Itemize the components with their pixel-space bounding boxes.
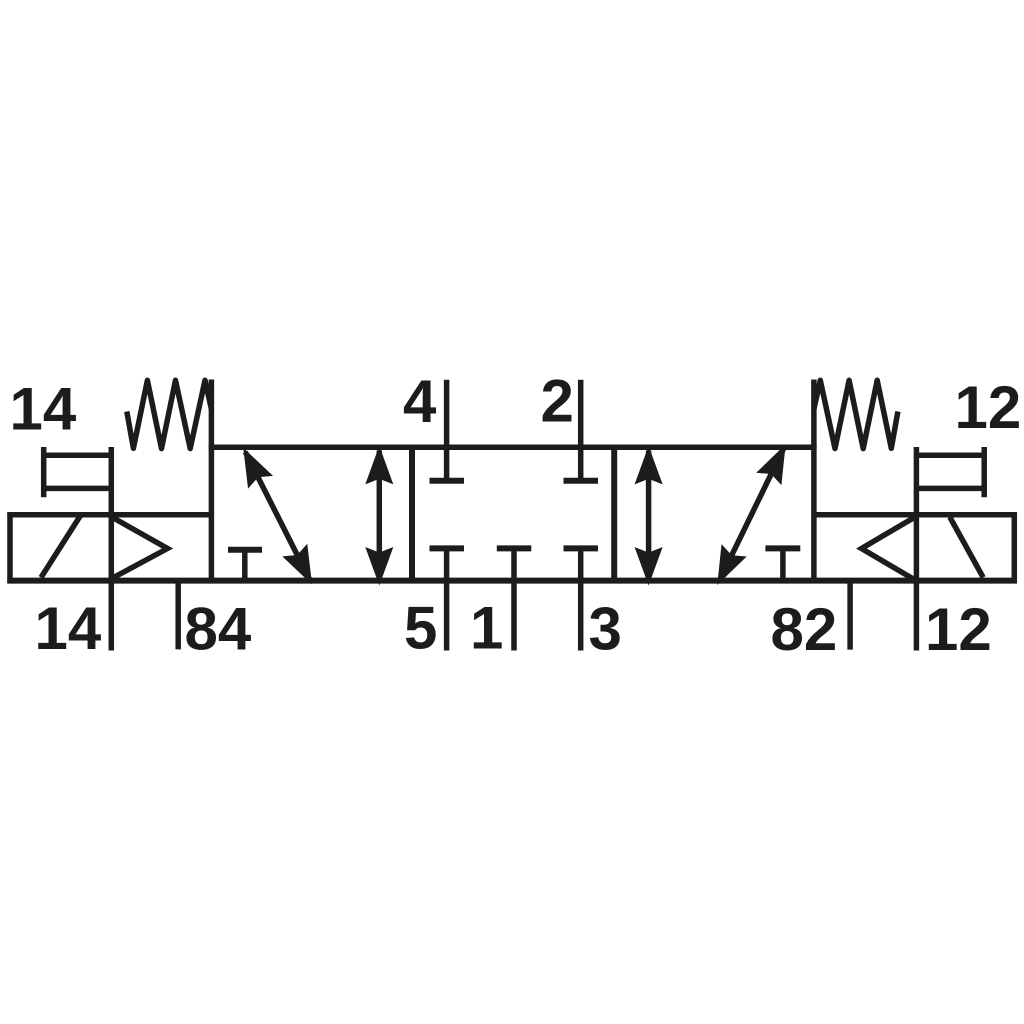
svg-text:5: 5: [404, 595, 437, 662]
svg-text:2: 2: [541, 368, 574, 435]
svg-text:3: 3: [589, 596, 622, 663]
svg-text:84: 84: [185, 596, 252, 663]
svg-text:82: 82: [771, 596, 838, 663]
svg-text:12: 12: [955, 374, 1022, 441]
svg-text:4: 4: [403, 368, 437, 435]
svg-text:14: 14: [10, 376, 77, 443]
svg-text:12: 12: [925, 596, 992, 663]
svg-text:1: 1: [470, 595, 503, 662]
svg-text:14: 14: [35, 595, 102, 662]
